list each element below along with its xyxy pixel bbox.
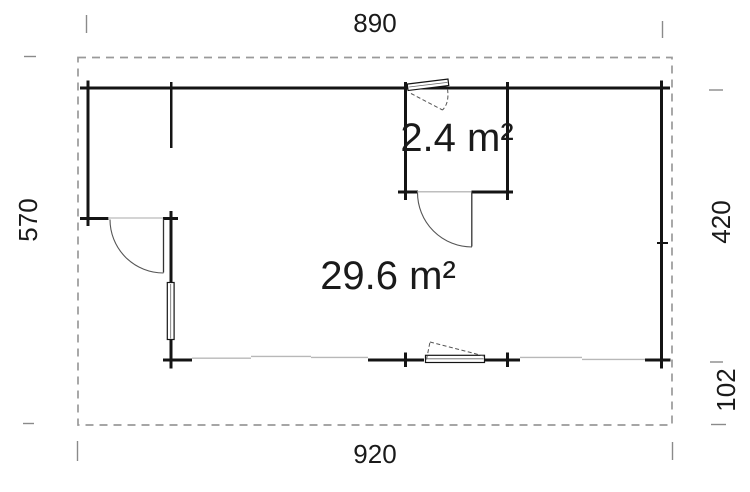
dimension-extension-ticks	[23, 15, 726, 461]
wall-inner-upper	[170, 211, 173, 283]
room-area-small: 2.4 m²	[377, 118, 537, 158]
wall-top	[80, 87, 670, 90]
dimension-bottom-width: 920	[335, 441, 415, 467]
window-bottom-tilt-line-right	[430, 342, 484, 356]
dimension-right-lower-height: 102	[713, 350, 739, 430]
floor-plan-drawing	[0, 0, 750, 492]
wall-small-room-bottom-right	[472, 191, 514, 194]
dimension-top-width: 890	[335, 10, 415, 36]
wall-entry-left	[80, 217, 109, 220]
door-openings	[108, 192, 472, 218]
floor-plan: 890 920 570 420 102 2.4 m² 29.6 m²	[0, 0, 750, 492]
window-left	[167, 283, 174, 340]
entry-door	[110, 219, 164, 273]
small-room-door-swing-arc	[418, 193, 473, 248]
wall-right	[660, 81, 663, 369]
wall-left	[87, 81, 90, 227]
window-top-swing-arc	[443, 89, 448, 110]
wall-bottom-3	[485, 359, 520, 362]
wall-cross-tick-405	[404, 353, 407, 368]
wall-small-room-bottom-left	[398, 191, 418, 194]
entry-door-swing-arc	[110, 220, 164, 274]
wall-joint-tick-right	[657, 242, 668, 244]
wall-bottom-2	[368, 359, 424, 362]
wall-cross-tick-507	[506, 353, 509, 368]
wall-inner-lower	[170, 339, 173, 369]
wall-stub-entry	[170, 82, 173, 148]
room-area-large: 29.6 m²	[288, 256, 488, 296]
window-top	[407, 79, 448, 110]
window-top-swing-line	[411, 94, 443, 111]
wall-bottom-1	[163, 359, 192, 362]
dimension-right-upper-height: 420	[708, 182, 734, 262]
dimension-left-height: 570	[15, 180, 41, 260]
roof-outline-dashed	[78, 58, 672, 426]
small-room-door	[418, 193, 473, 248]
window-bottom	[426, 342, 485, 363]
wall-bottom-4	[645, 359, 671, 362]
